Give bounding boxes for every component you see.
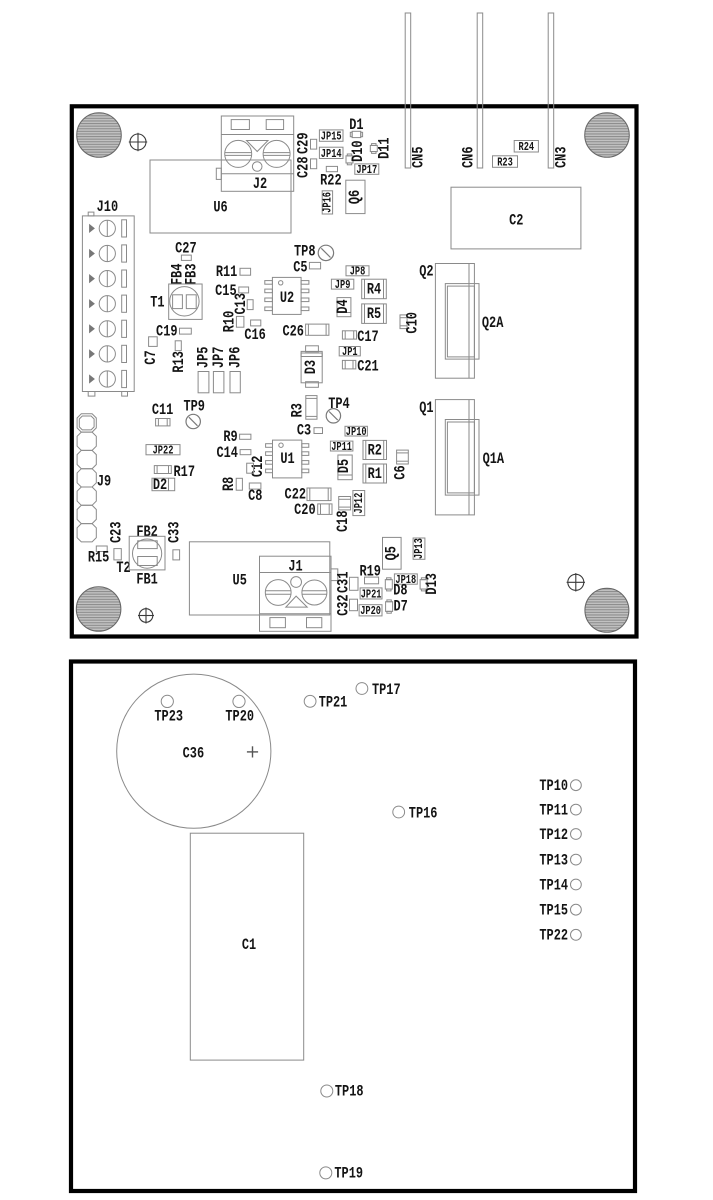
svg-text:C7: C7 xyxy=(142,350,160,364)
svg-text:JP11: JP11 xyxy=(331,441,352,454)
svg-text:TP13: TP13 xyxy=(539,852,568,870)
svg-text:FB3: FB3 xyxy=(183,264,201,286)
svg-text:FB2: FB2 xyxy=(136,523,158,541)
svg-text:C3: C3 xyxy=(297,422,311,440)
svg-text:R8: R8 xyxy=(220,477,238,491)
svg-text:JP14: JP14 xyxy=(321,148,342,161)
svg-text:C23: C23 xyxy=(108,522,126,544)
svg-text:R15: R15 xyxy=(88,549,110,567)
svg-text:CN6: CN6 xyxy=(460,147,478,169)
svg-text:R4: R4 xyxy=(367,281,381,299)
svg-text:TP16: TP16 xyxy=(409,804,438,822)
svg-text:TP15: TP15 xyxy=(539,902,568,920)
svg-text:JP16: JP16 xyxy=(321,192,334,213)
svg-text:TP10: TP10 xyxy=(539,777,568,795)
svg-text:TP14: TP14 xyxy=(539,876,568,894)
svg-text:TP17: TP17 xyxy=(372,681,401,699)
svg-text:C5: C5 xyxy=(293,258,307,276)
svg-text:JP9: JP9 xyxy=(335,279,351,292)
svg-text:D3: D3 xyxy=(302,360,320,374)
svg-text:C12: C12 xyxy=(249,456,267,478)
svg-text:TP9: TP9 xyxy=(183,398,205,416)
svg-text:C28: C28 xyxy=(295,157,313,179)
svg-text:R19: R19 xyxy=(359,563,381,581)
svg-text:C20: C20 xyxy=(294,501,316,519)
svg-text:C16: C16 xyxy=(244,326,266,344)
svg-text:J1: J1 xyxy=(288,558,302,576)
svg-text:JP12: JP12 xyxy=(353,493,366,514)
svg-text:R24: R24 xyxy=(519,141,535,154)
svg-text:JP22: JP22 xyxy=(153,445,174,458)
svg-text:TP11: TP11 xyxy=(539,802,568,820)
svg-text:JP20: JP20 xyxy=(360,605,381,618)
svg-text:Q2: Q2 xyxy=(419,263,433,281)
svg-text:JP15: JP15 xyxy=(321,131,342,144)
svg-text:R22: R22 xyxy=(320,172,342,190)
svg-text:T2: T2 xyxy=(116,559,130,577)
svg-text:D4: D4 xyxy=(334,299,352,313)
svg-text:Q1: Q1 xyxy=(419,399,433,417)
svg-text:J10: J10 xyxy=(97,198,119,216)
svg-text:C19: C19 xyxy=(156,322,178,340)
svg-text:R1: R1 xyxy=(368,465,382,483)
svg-text:D10: D10 xyxy=(349,140,367,162)
svg-text:Q5: Q5 xyxy=(382,546,400,560)
svg-text:CN5: CN5 xyxy=(410,147,428,169)
svg-text:TP12: TP12 xyxy=(539,826,568,844)
svg-text:C2: C2 xyxy=(509,212,523,230)
svg-text:TP18: TP18 xyxy=(335,1082,364,1100)
svg-text:C11: C11 xyxy=(152,401,174,419)
svg-text:C33: C33 xyxy=(166,522,184,544)
svg-text:JP1: JP1 xyxy=(342,346,358,359)
svg-text:Q6: Q6 xyxy=(346,190,364,204)
svg-text:TP19: TP19 xyxy=(334,1165,363,1183)
svg-text:JP6: JP6 xyxy=(226,347,244,368)
svg-text:R5: R5 xyxy=(367,305,381,323)
svg-text:U5: U5 xyxy=(233,572,247,590)
svg-text:TP21: TP21 xyxy=(319,694,348,712)
svg-text:Q2A: Q2A xyxy=(482,314,504,332)
svg-text:J9: J9 xyxy=(97,473,111,491)
svg-text:R9: R9 xyxy=(223,428,237,446)
svg-text:JP17: JP17 xyxy=(356,164,377,177)
svg-text:C29: C29 xyxy=(295,133,313,155)
svg-text:D5: D5 xyxy=(335,459,353,473)
svg-text:U6: U6 xyxy=(213,199,227,217)
svg-text:JP10: JP10 xyxy=(346,426,367,439)
svg-text:U2: U2 xyxy=(280,289,294,307)
svg-text:TP20: TP20 xyxy=(225,708,254,726)
svg-text:JP21: JP21 xyxy=(361,588,382,601)
svg-text:JP13: JP13 xyxy=(413,538,426,559)
svg-text:R11: R11 xyxy=(216,263,238,281)
svg-text:C36: C36 xyxy=(183,745,205,763)
svg-text:TP4: TP4 xyxy=(328,395,350,413)
svg-text:C10: C10 xyxy=(404,312,422,334)
svg-text:C17: C17 xyxy=(357,328,379,346)
svg-text:C8: C8 xyxy=(248,487,262,505)
svg-text:R10: R10 xyxy=(221,311,239,333)
svg-text:R13: R13 xyxy=(170,351,188,373)
svg-text:TP23: TP23 xyxy=(154,708,183,726)
svg-text:C6: C6 xyxy=(392,465,410,479)
svg-text:C26: C26 xyxy=(282,323,304,341)
svg-text:C21: C21 xyxy=(357,358,379,376)
svg-text:D11: D11 xyxy=(376,137,394,159)
svg-text:CN3: CN3 xyxy=(553,147,571,169)
svg-text:C14: C14 xyxy=(216,444,238,462)
svg-text:R17: R17 xyxy=(174,463,196,481)
svg-text:R2: R2 xyxy=(368,442,382,460)
svg-text:D7: D7 xyxy=(394,598,408,616)
svg-text:C1: C1 xyxy=(242,936,256,954)
svg-text:D2: D2 xyxy=(153,476,167,494)
svg-text:FB1: FB1 xyxy=(136,570,158,588)
svg-text:TP22: TP22 xyxy=(539,927,568,945)
svg-text:JP7: JP7 xyxy=(210,347,228,369)
svg-text:J2: J2 xyxy=(253,175,267,193)
svg-text:C18: C18 xyxy=(334,511,352,533)
svg-text:R23: R23 xyxy=(497,157,513,170)
svg-text:D13: D13 xyxy=(423,573,441,595)
svg-text:T1: T1 xyxy=(150,294,164,312)
svg-text:JP8: JP8 xyxy=(350,266,366,279)
svg-text:Q1A: Q1A xyxy=(483,450,505,468)
svg-text:R3: R3 xyxy=(289,403,307,417)
svg-text:U1: U1 xyxy=(280,450,294,468)
